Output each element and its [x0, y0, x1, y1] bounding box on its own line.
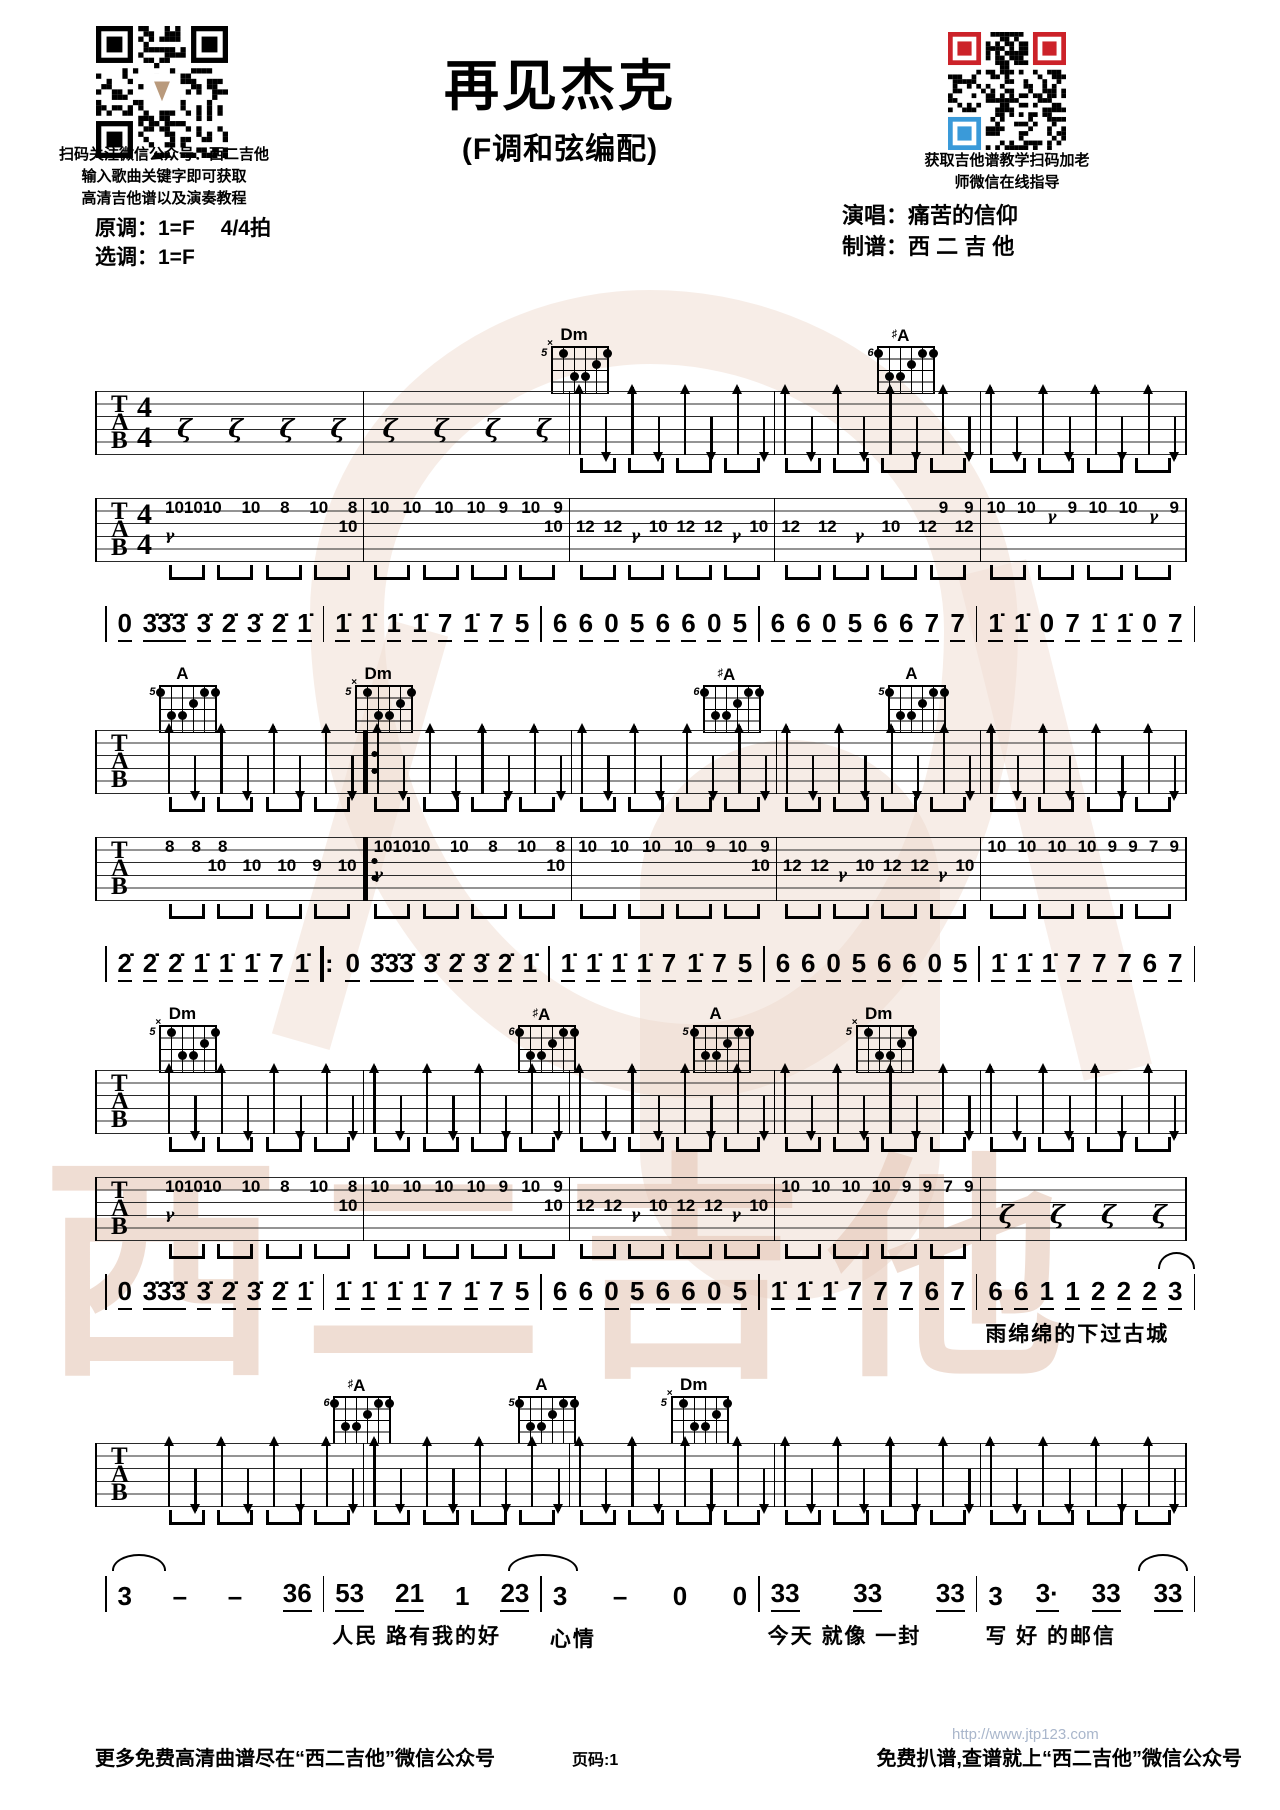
- beam: [785, 797, 821, 812]
- up-arrow: [479, 1066, 481, 1134]
- beam: [628, 565, 664, 580]
- up-arrow: [579, 1439, 581, 1507]
- beam: [881, 797, 917, 812]
- beam-group: [773, 1244, 978, 1260]
- down-arrow: [452, 1096, 454, 1138]
- beam: [423, 1244, 459, 1259]
- beam: [580, 1510, 616, 1525]
- jianpu-line: 2̇2̇2̇1̇1̇1̇71̇:03̇3̇3̇3̇2̇3̇2̇1̇1̇1̇1̇1…: [105, 936, 1195, 982]
- jianpu-note: 3·: [1036, 1578, 1059, 1612]
- up-arrow: [481, 726, 483, 794]
- jianpu-note: 3: [988, 1581, 1002, 1612]
- beam: [374, 1244, 410, 1259]
- tab-row-high: 101010108108: [165, 499, 357, 516]
- tab-number: 10: [1088, 499, 1107, 526]
- finger-dot: [178, 711, 187, 720]
- jianpu-note: 1̇: [244, 948, 258, 982]
- down-arrow: [558, 1096, 560, 1138]
- down-arrow: [194, 1096, 196, 1138]
- beam-group: [567, 797, 772, 813]
- finger-dot: [537, 1422, 546, 1431]
- jianpu-note: 0: [707, 1276, 721, 1310]
- finger-dot: [200, 1039, 209, 1048]
- beam-row: [157, 1244, 1183, 1260]
- beam: [519, 1244, 555, 1259]
- down-arrow: [560, 756, 562, 798]
- tab-number: 8: [280, 499, 289, 516]
- finger-dot: [570, 1028, 579, 1037]
- tab-number: 10: [338, 518, 357, 545]
- jianpu-note: 5: [738, 948, 752, 982]
- jianpu-note: –: [228, 1581, 242, 1612]
- finger-dot: [189, 699, 198, 708]
- jianpu-note: 6: [988, 1276, 1002, 1310]
- finger-dot: [559, 1399, 568, 1408]
- jianpu-note: 7: [438, 608, 452, 642]
- beam-group: [157, 797, 362, 813]
- finger-dot: [156, 688, 165, 697]
- measure: 101010108108γ10: [159, 498, 364, 562]
- finger-dot: [733, 699, 742, 708]
- beam: [580, 458, 616, 473]
- chord-name: A: [878, 666, 944, 682]
- up-arrow: [943, 726, 945, 794]
- tab-number: 12: [676, 518, 695, 545]
- jianpu-note: 2: [1142, 1276, 1156, 1310]
- tab-number: 10: [435, 499, 454, 516]
- tab-row-high: 101010109979: [987, 838, 1179, 855]
- measure: [159, 1070, 364, 1134]
- beam: [471, 565, 507, 580]
- finger-dot: [940, 688, 949, 697]
- jianpu-note: 1̇: [822, 1276, 836, 1310]
- jianpu-measure: 66112223雨绵绵的下过古城: [977, 1276, 1193, 1310]
- jianpu-measure: 333333今天 就像 一封: [760, 1578, 976, 1612]
- jianpu-note: 1̇: [611, 948, 625, 982]
- up-arrow: [220, 726, 222, 794]
- tab-number: 12: [818, 518, 837, 545]
- tab-number: 8: [348, 499, 357, 516]
- finger-dot: [864, 1028, 873, 1037]
- chord-row: Dm×5♯A6: [95, 327, 1183, 393]
- strum-staff: TAB: [95, 1443, 1187, 1507]
- beam: [314, 904, 350, 919]
- beam-group: [362, 1510, 567, 1526]
- jianpu-note: 1̇: [464, 608, 478, 642]
- down-arrow: [1016, 1469, 1018, 1511]
- lyric-text: 心情: [550, 1623, 596, 1653]
- down-arrow: [300, 1469, 302, 1511]
- jianpu-note: 6: [656, 608, 670, 642]
- finger-dot: [929, 349, 938, 358]
- finger-dot: [581, 372, 590, 381]
- tab-number: 12: [603, 1197, 622, 1224]
- jianpu-line: 03̇3̇3̇3̇2̇3̇2̇1̇1̇1̇1̇1̇71̇756605660566…: [105, 596, 1195, 642]
- finger-dot: [896, 372, 905, 381]
- jianpu-note: 1̇: [219, 948, 233, 982]
- up-arrow: [784, 1066, 786, 1134]
- jianpu-note: 0: [928, 948, 942, 982]
- beam-group: [567, 1137, 772, 1153]
- tab-number: 12: [910, 857, 929, 884]
- tab-number: 10: [872, 1178, 891, 1195]
- beam: [676, 1137, 712, 1152]
- beam: [519, 565, 555, 580]
- jianpu-note: 36: [283, 1578, 312, 1612]
- finger-dot: [722, 711, 731, 720]
- down-arrow: [1174, 1096, 1176, 1138]
- tab-number: 12: [704, 1197, 723, 1224]
- measures-row: 101010108108γ10101010109109101212γ101212…: [159, 1177, 1185, 1241]
- down-arrow: [1121, 756, 1123, 798]
- tab-number: 101010: [165, 499, 222, 516]
- finger-dot: [701, 1422, 710, 1431]
- jianpu-note: 6: [579, 1276, 593, 1310]
- down-arrow: [1174, 1469, 1176, 1511]
- beam: [833, 797, 869, 812]
- beam: [1038, 1137, 1074, 1152]
- strum-pattern: [579, 387, 765, 463]
- beam: [930, 1510, 966, 1525]
- measure: 991212γ101212: [775, 498, 980, 562]
- tab-number: 9: [312, 857, 321, 874]
- beam: [990, 458, 1026, 473]
- tab-number: 9: [1128, 838, 1137, 855]
- jianpu-note: 1̇: [295, 948, 309, 982]
- chord-diagram: A5: [508, 1377, 574, 1444]
- fret-number: 5: [149, 686, 155, 698]
- tab-number: 9: [1169, 838, 1178, 855]
- down-arrow: [863, 417, 865, 459]
- beam: [374, 797, 410, 812]
- jianpu-line: 3––365321123人民 路有我的好3–00心情333333今天 就像 一封…: [105, 1566, 1195, 1612]
- beam: [266, 797, 302, 812]
- finger-dot: [723, 1399, 732, 1408]
- beam-group: [157, 904, 362, 920]
- down-arrow: [558, 1469, 560, 1511]
- tab-staff: TAB44101010108108γ10101010109109101212γ1…: [95, 498, 1187, 562]
- measures-row: [159, 730, 1185, 794]
- tab-number: 9: [553, 1178, 562, 1195]
- jianpu-note: 6: [873, 608, 887, 642]
- jianpu-measure: 1̇1̇1̇77767: [980, 948, 1194, 982]
- up-arrow: [221, 1066, 223, 1134]
- beam: [785, 458, 821, 473]
- fret-number: 6: [693, 686, 699, 698]
- down-arrow: [605, 1469, 607, 1511]
- quarter-rest: ζ: [434, 416, 449, 442]
- tab-number: 10: [370, 1178, 389, 1195]
- tab-number: 10: [1119, 499, 1138, 526]
- beam: [580, 1244, 616, 1259]
- jianpu-note: 1̇: [297, 1276, 311, 1310]
- jianpu-note: 7: [1168, 948, 1182, 982]
- beam: [580, 1137, 616, 1152]
- tab-number: 9: [1108, 838, 1117, 855]
- beam: [1135, 565, 1171, 580]
- jianpu-note: 1̇: [335, 608, 349, 642]
- beam: [169, 797, 205, 812]
- beam: [628, 1510, 664, 1525]
- tab-letter: B: [111, 429, 128, 453]
- tab-row-high: 101010108108: [374, 838, 566, 855]
- tab-row-high: 888: [165, 838, 251, 855]
- beam: [217, 904, 253, 919]
- strum-pattern: [786, 726, 972, 802]
- jianpu-note: 7: [950, 1276, 964, 1310]
- beam: [519, 904, 555, 919]
- quarter-rest: ζ: [279, 416, 294, 442]
- measures-row: ζζζζζζζζ: [159, 391, 1185, 455]
- tab-number: 10: [450, 838, 469, 855]
- strum-pattern: [579, 1066, 765, 1142]
- jianpu-note: 33: [853, 1578, 882, 1612]
- slur-arc: [508, 1554, 577, 1571]
- chord-diagram: ♯A6: [867, 327, 933, 394]
- beam: [881, 458, 917, 473]
- tab-number: 10: [749, 518, 768, 545]
- jianpu-note: 5: [515, 1276, 529, 1310]
- tab-number: 10: [207, 857, 226, 874]
- beam: [217, 1244, 253, 1259]
- tab-number: 10: [467, 499, 486, 516]
- jianpu-note: –: [173, 1581, 187, 1612]
- beam-row: [157, 797, 1183, 813]
- eighth-rest: γ: [938, 867, 947, 884]
- jianpu-note: 21: [395, 1578, 424, 1612]
- tab-number: 10: [674, 838, 693, 855]
- down-arrow: [660, 756, 662, 798]
- barline: [1194, 946, 1196, 982]
- down-arrow: [400, 1469, 402, 1511]
- finger-dot: [700, 688, 709, 697]
- up-arrow: [738, 726, 740, 794]
- beam: [676, 1244, 712, 1259]
- jianpu-note: 6: [796, 608, 810, 642]
- jianpu-note: 2̇: [143, 948, 157, 982]
- tab-row-high: 101010109109: [370, 1178, 562, 1195]
- jianpu-note: 7: [873, 1276, 887, 1310]
- measure: 101010108108γ10: [159, 1177, 364, 1241]
- tab-row-low: 10: [578, 857, 770, 874]
- up-arrow: [837, 1066, 839, 1134]
- beam: [881, 1244, 917, 1259]
- tab-number: 101010: [374, 838, 431, 855]
- jianpu-note: 1: [455, 1581, 469, 1612]
- finger-dot: [570, 1399, 579, 1408]
- tab-number: 9: [902, 1178, 911, 1195]
- jianpu-note: 7: [489, 608, 503, 642]
- eighth-rest: γ: [374, 867, 383, 884]
- chord-diagram: Dm×5: [661, 1377, 727, 1444]
- jianpu-note: 1̇: [796, 1276, 810, 1310]
- measure: [570, 1443, 775, 1507]
- jianpu-note: 6: [681, 608, 695, 642]
- tab-row-high: 101010109109: [370, 499, 562, 516]
- finger-dot: [745, 1028, 754, 1037]
- down-arrow: [505, 1096, 507, 1138]
- jianpu-note: 3̇: [247, 1276, 261, 1310]
- fret-number: 5: [683, 1026, 689, 1038]
- tab-row-high: 101010109109: [578, 838, 770, 855]
- tab-staff: TAB101010108108γ10101010109109101212γ101…: [95, 1177, 1187, 1241]
- measure: 101010109979: [981, 837, 1185, 901]
- measure: 1010γ91010γ9: [981, 498, 1185, 562]
- beam-group: [362, 565, 567, 581]
- measure: [775, 391, 980, 455]
- down-arrow: [863, 1469, 865, 1511]
- eighth-rest: γ: [1047, 509, 1056, 526]
- jianpu-note: 2: [1117, 1276, 1131, 1310]
- tab-number: 10: [544, 1197, 563, 1214]
- measure: 1212γ101212γ10: [570, 498, 775, 562]
- jianpu-note: 1̇: [361, 1276, 375, 1310]
- beam-group: [567, 565, 772, 581]
- finger-dot: [885, 372, 894, 381]
- down-arrow: [1174, 417, 1176, 459]
- finger-dot: [526, 1422, 535, 1431]
- tab-number: 12: [918, 518, 937, 545]
- up-arrow: [426, 1066, 428, 1134]
- fret-number: 5: [149, 1026, 155, 1038]
- beam: [374, 565, 410, 580]
- strum-pattern: [168, 1066, 354, 1142]
- tab-number: 10: [370, 499, 389, 516]
- jianpu-note: 2̇: [272, 1276, 286, 1310]
- finger-dot: [755, 688, 764, 697]
- up-arrow: [631, 387, 633, 455]
- beam: [676, 565, 712, 580]
- beam: [930, 458, 966, 473]
- strum-pattern: [373, 1066, 559, 1142]
- jianpu-measure: 3––36: [107, 1578, 323, 1612]
- jianpu-note: 23: [500, 1578, 529, 1612]
- lyric-text: 写 好 的邮信: [985, 1620, 1116, 1650]
- finger-dot: [592, 360, 601, 369]
- sharp-sign: ♯: [348, 1378, 354, 1390]
- finger-dot: [907, 360, 916, 369]
- jianpu-note: 7: [925, 608, 939, 642]
- strum-pattern: [581, 726, 767, 802]
- beam: [990, 797, 1026, 812]
- jianpu-note: 1̇: [1091, 608, 1105, 642]
- finger-dot: [559, 349, 568, 358]
- beam: [930, 1244, 966, 1259]
- beam: [676, 797, 712, 812]
- up-arrow: [891, 726, 893, 794]
- finger-dot: [548, 1039, 557, 1048]
- jianpu-note: 3: [1168, 1276, 1182, 1310]
- fret-number: 6: [867, 347, 873, 359]
- quarter-rest: ζ: [1152, 1202, 1167, 1228]
- finger-dot: [908, 1028, 917, 1037]
- fret-number: 5: [508, 1397, 514, 1409]
- up-arrow: [784, 387, 786, 455]
- tab-number: 10: [578, 838, 597, 855]
- jianpu-line: 03̇3̇3̇3̇2̇3̇2̇1̇1̇1̇1̇1̇71̇75660566051̇…: [105, 1264, 1195, 1310]
- beam-group: [773, 797, 978, 813]
- down-arrow: [811, 1469, 813, 1511]
- jianpu-note: 2̇: [222, 608, 236, 642]
- down-arrow: [605, 1096, 607, 1138]
- up-arrow: [990, 726, 992, 794]
- finger-dot: [711, 711, 720, 720]
- jianpu-note: 7: [1092, 948, 1106, 982]
- up-arrow: [273, 1439, 275, 1507]
- tab-row-low: 1212γ101212γ10: [576, 518, 768, 545]
- beam: [314, 797, 350, 812]
- tab-number: 7: [1149, 838, 1158, 855]
- beam: [1135, 797, 1171, 812]
- beam: [676, 458, 712, 473]
- jianpu-note: 0: [345, 948, 359, 982]
- finger-dot: [407, 688, 416, 697]
- chord-diagram: ♯A6: [693, 666, 759, 733]
- tab-row-high: 99: [781, 499, 973, 516]
- beam-group: [978, 565, 1183, 581]
- jianpu-note: 6: [1014, 1276, 1028, 1310]
- jianpu-note: 1̇: [335, 1276, 349, 1310]
- beam: [724, 565, 760, 580]
- beam-group: [362, 1244, 567, 1260]
- up-arrow: [837, 1439, 839, 1507]
- tab-number: 8: [348, 1178, 357, 1195]
- jianpu-measure: 3–00心情: [542, 1581, 758, 1612]
- beam: [930, 1137, 966, 1152]
- slur-arc: [1138, 1554, 1188, 1571]
- beam-group: [567, 904, 772, 920]
- beam: [266, 1137, 302, 1152]
- up-arrow: [684, 387, 686, 455]
- beam: [217, 797, 253, 812]
- fret-number: 5: [661, 1397, 667, 1409]
- up-arrow: [942, 387, 944, 455]
- jianpu-note: 1̇: [361, 608, 375, 642]
- tab-number: 12: [810, 857, 829, 884]
- beam-group: [362, 904, 567, 920]
- jianpu-note: 0: [1142, 608, 1156, 642]
- chord-diagram: A5: [149, 666, 215, 733]
- up-arrow: [1095, 726, 1097, 794]
- jianpu-measure: 1̇1̇1̇1̇71̇75: [550, 948, 764, 982]
- tab-row-low: 10: [370, 518, 562, 535]
- down-arrow: [1069, 1096, 1071, 1138]
- beam-group: [567, 1244, 772, 1260]
- measure: [570, 1070, 775, 1134]
- tab-number: 10: [1017, 499, 1036, 526]
- beam-row: [157, 1137, 1183, 1153]
- jianpu-note: 1̇: [412, 1276, 426, 1310]
- tab-number: 10: [338, 857, 357, 874]
- tab-number: 12: [883, 857, 902, 884]
- fret-number: 5: [878, 686, 884, 698]
- beam: [628, 458, 664, 473]
- jianpu-note: 1̇: [387, 1276, 401, 1310]
- tab-number: 9: [1068, 499, 1077, 526]
- tab-number: 10: [751, 857, 770, 874]
- jianpu-note: 1̇: [387, 608, 401, 642]
- jianpu-note: 5: [852, 948, 866, 982]
- down-arrow: [1016, 417, 1018, 459]
- strum-pattern: [579, 1439, 765, 1515]
- beam: [580, 797, 616, 812]
- down-arrow: [508, 756, 510, 798]
- down-arrow: [811, 417, 813, 459]
- quarter-rest: ζ: [485, 416, 500, 442]
- down-arrow: [710, 417, 712, 459]
- jianpu-note: 6: [899, 608, 913, 642]
- eighth-rest: γ: [631, 1207, 640, 1224]
